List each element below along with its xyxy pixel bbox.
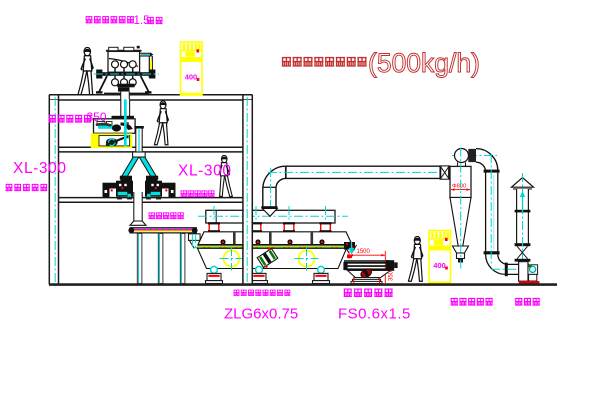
svg-text:XL-300: XL-300 (178, 163, 232, 180)
svg-text:ZLG6x0.75: ZLG6x0.75 (224, 306, 298, 323)
svg-text:XL-300: XL-300 (13, 160, 67, 177)
svg-text:400: 400 (185, 73, 198, 82)
svg-text:1500: 1500 (357, 249, 371, 255)
svg-text:350: 350 (87, 110, 107, 124)
svg-text:FS0.6x1.5: FS0.6x1.5 (338, 306, 411, 323)
svg-text:1.5: 1.5 (134, 15, 150, 27)
svg-text:400: 400 (433, 261, 446, 270)
svg-text:(500kg/h): (500kg/h) (368, 48, 480, 78)
svg-text:350: 350 (389, 270, 395, 281)
